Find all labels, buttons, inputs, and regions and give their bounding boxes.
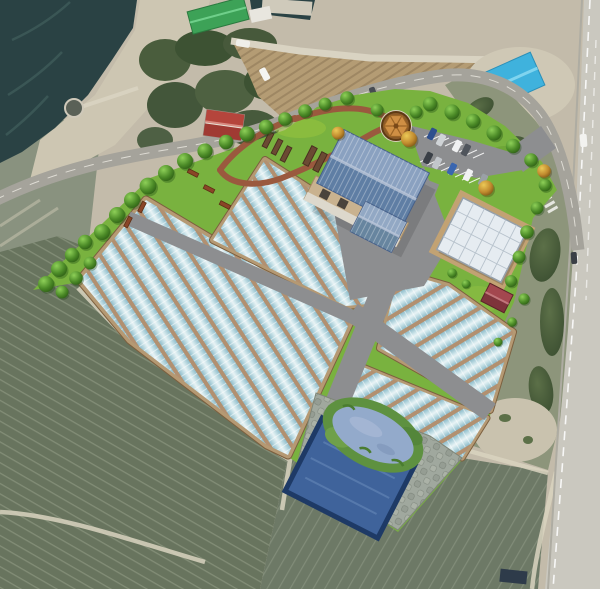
highway-car-dark — [571, 252, 578, 264]
water-tank — [65, 99, 83, 117]
highway-car — [580, 134, 588, 147]
screenshot-root — [0, 0, 600, 589]
siteplan-rendering — [0, 0, 600, 589]
